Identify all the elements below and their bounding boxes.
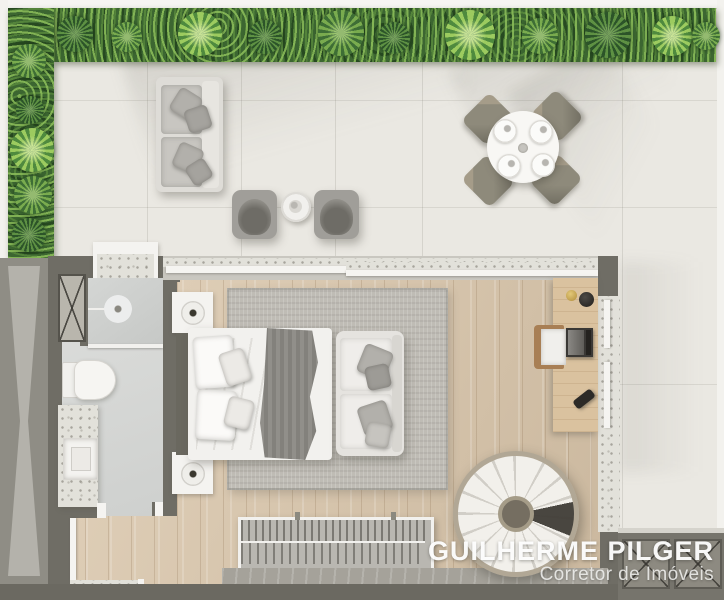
throw-blanket [260, 328, 318, 460]
palm-plant [445, 10, 495, 60]
palm-plant [318, 10, 364, 56]
place-setting [497, 154, 521, 178]
table-lamp [181, 301, 205, 325]
door-jamb [97, 503, 106, 518]
staircase-hub [498, 496, 534, 532]
palm-plant [378, 22, 410, 54]
laptop-keyboard [586, 330, 591, 355]
laptop [566, 328, 593, 357]
sofa-pillow [364, 363, 392, 391]
sliding-door-track [163, 256, 598, 280]
shaft-cross [60, 276, 84, 340]
palm-plant [652, 16, 692, 56]
hanging-clothes-row [241, 520, 425, 541]
vanity-sink [63, 438, 98, 480]
palm-plant [12, 44, 46, 78]
nightstand [172, 292, 213, 333]
side-table [281, 192, 311, 222]
lower-wall-band [0, 584, 724, 600]
watermark-role: Corretor de Imóveis [428, 565, 714, 585]
desk-chair [534, 325, 566, 369]
chair-seat [541, 329, 566, 365]
left-edge-strip [0, 0, 8, 258]
palm-plant [12, 218, 46, 252]
rack-hook [391, 512, 396, 520]
sink-basin [71, 447, 91, 471]
shower-glass [88, 344, 163, 348]
table-centerpiece [518, 143, 528, 153]
lounge-chair [314, 190, 359, 239]
door-jamb [155, 502, 163, 516]
palm-plant [248, 20, 282, 54]
floor-plan: GUILHERME PILGER Corretor de Imóveis [0, 0, 724, 600]
desk-accessory-gold [566, 290, 577, 301]
clothes-rack [238, 517, 434, 573]
door-frame [166, 266, 352, 273]
palm-plant [178, 12, 222, 56]
rack-hook [295, 512, 300, 520]
terrace-shadow [620, 262, 720, 472]
lounge-chair-seat [238, 199, 271, 235]
sofa-backrest [392, 335, 402, 452]
laptop-screen [568, 330, 584, 355]
palm-plant [16, 96, 44, 124]
door-frame [604, 300, 610, 348]
palm-plant [585, 12, 631, 58]
hanging-clothes-row [241, 543, 425, 564]
side-table-decor [289, 200, 302, 213]
watermark: GUILHERME PILGER Corretor de Imóveis [428, 537, 714, 585]
bedroom-sofa [336, 331, 404, 456]
table-lamp [181, 462, 205, 486]
door-frame [346, 270, 598, 276]
palm-plant [692, 22, 720, 50]
lounge-chair [232, 190, 277, 239]
sofa-pillow [364, 421, 392, 449]
door-frame [604, 362, 610, 428]
duct-shaft [58, 274, 86, 342]
outdoor-sofa [156, 77, 223, 192]
desk-accessory-black [579, 292, 594, 307]
place-setting [493, 119, 517, 143]
door-sill [346, 262, 598, 270]
watermark-name: GUILHERME PILGER [428, 537, 714, 565]
double-bed [188, 328, 332, 460]
palm-plant [14, 176, 52, 214]
right-edge-strip [717, 0, 724, 532]
place-setting [529, 120, 553, 144]
toilet [62, 360, 114, 398]
palm-plant [57, 16, 93, 52]
palm-plant [10, 128, 54, 172]
entry-door [70, 518, 76, 580]
louver-panel [0, 258, 48, 584]
palm-plant [112, 22, 142, 52]
lounge-chair-seat [320, 199, 353, 235]
shower-head [104, 295, 132, 323]
place-setting [531, 153, 555, 177]
louver-hourglass [4, 266, 44, 576]
palm-plant [522, 18, 558, 54]
toilet-bowl [74, 360, 116, 400]
